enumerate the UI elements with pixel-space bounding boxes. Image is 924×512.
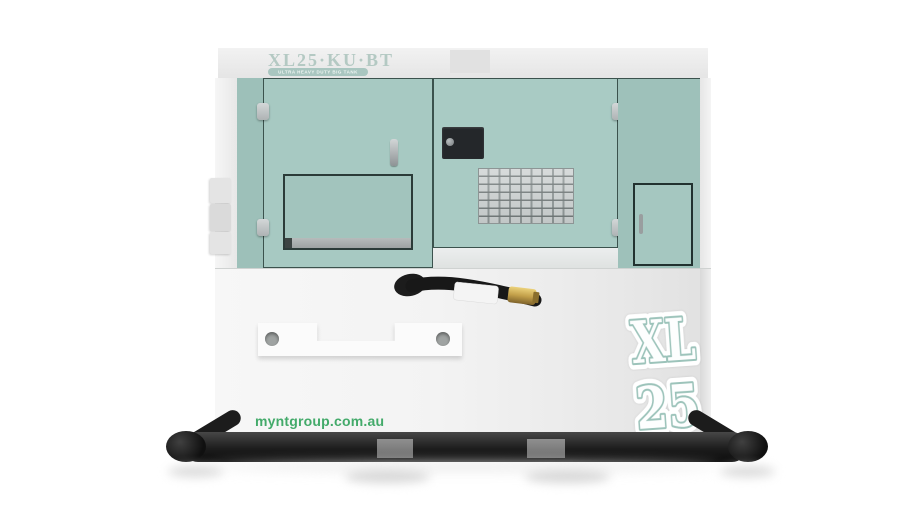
side-hinge-block (210, 232, 231, 254)
lifting-bracket (258, 323, 462, 356)
website-text: myntgroup.com.au (255, 413, 384, 429)
floor-shadow (210, 463, 720, 471)
logo-text-top: XL (629, 305, 698, 377)
earth-cable-assembly (390, 273, 555, 315)
brass-fitting (507, 286, 540, 306)
control-knob-icon (446, 138, 454, 146)
logo-text-bottom: 25 (634, 371, 703, 438)
forklift-pad (527, 439, 565, 458)
left-door-handle (390, 139, 398, 166)
floor-reflection (168, 466, 223, 477)
skid-end-cap (728, 431, 768, 462)
lifting-bracket-plate (258, 323, 462, 356)
canopy-panel-section (215, 78, 711, 268)
floor-reflection (345, 470, 430, 483)
door-hinge-icon (257, 219, 269, 236)
side-hinge-block (210, 178, 231, 203)
canopy-right-frame (700, 78, 711, 268)
door-hinge-icon (257, 103, 269, 120)
skid-base-bar (183, 432, 747, 462)
recess-step-shadow (285, 238, 292, 248)
fuel-fill-recess (283, 174, 413, 250)
floor-reflection (525, 470, 610, 483)
side-hinge-block (210, 204, 231, 231)
model-sub-label-badge: ULTRA HEAVY DUTY BIG TANK (268, 68, 368, 76)
control-panel-window (442, 127, 484, 159)
bracket-hole-icon (265, 332, 279, 346)
ventilation-grille (478, 168, 574, 224)
roof-band: XL25·KU·BT ULTRA HEAVY DUTY BIG TANK (218, 48, 708, 78)
service-hatch-handle (639, 214, 643, 234)
skid-end-cap (166, 431, 206, 462)
product-render-canvas: XL25·KU·BT ULTRA HEAVY DUTY BIG TANK (0, 0, 924, 512)
model-sub-label: ULTRA HEAVY DUTY BIG TANK (268, 68, 368, 76)
bracket-hole-icon (436, 332, 450, 346)
base-tank-housing: XL XL 25 25 myntgroup.com.au (215, 268, 711, 432)
middle-door-sill (433, 248, 618, 268)
floor-reflection (720, 466, 775, 477)
recess-step-bar (285, 238, 411, 248)
roof-exhaust-recess (450, 50, 490, 73)
side-hinge-blocks (210, 178, 231, 254)
forklift-pad (377, 439, 413, 458)
